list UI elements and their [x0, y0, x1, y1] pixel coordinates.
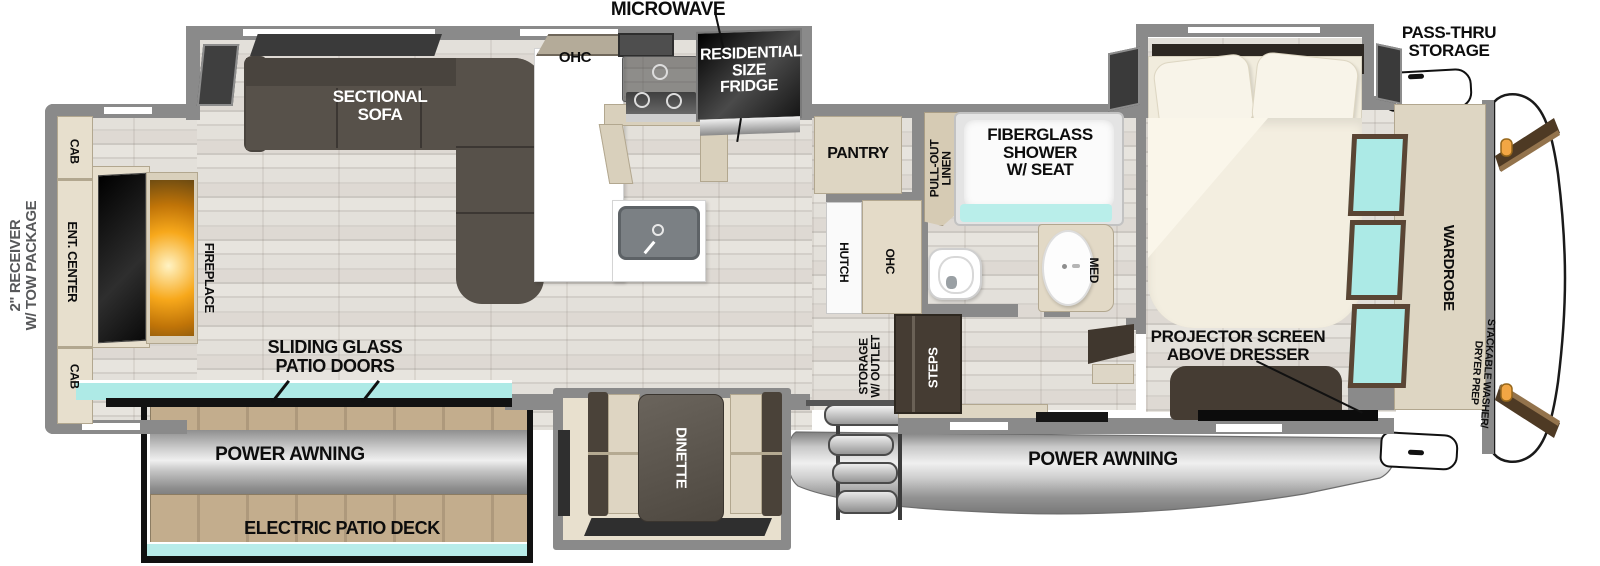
pantry-label: PANTRY [814, 146, 902, 163]
pull-out-linen-label: PULL-OUT LINEN [922, 114, 960, 222]
ohc-bath-label: OHC [876, 232, 904, 290]
fireplace-label: FIREPLACE [196, 210, 222, 346]
window-bed-slide-top [1188, 27, 1320, 33]
patio-frame-right [527, 404, 533, 558]
rear-cabinet-divider-1 [57, 178, 93, 181]
fireplace-glow [150, 180, 194, 336]
sink-drain [652, 224, 664, 236]
window-bed-left [1108, 47, 1140, 112]
sofa-chaise-seam-2 [456, 212, 544, 214]
patio-door-frame [106, 398, 512, 407]
projector-screen [1198, 410, 1378, 421]
bedroom-step [1092, 364, 1134, 384]
steps-label: STEPS [918, 328, 948, 408]
burner-1 [652, 64, 668, 80]
electric-patio-deck-label: ELECTRIC PATIO DECK [230, 519, 454, 538]
wardrobe-mirror-1 [1348, 134, 1408, 216]
burner-3 [666, 93, 682, 109]
marker-light-top [1501, 139, 1512, 156]
fridge-label: RESIDENTIAL SIZE FRIDGE [700, 44, 798, 97]
shower-seat-edge [960, 204, 1112, 222]
sofa-chaise [456, 58, 544, 304]
power-awning-left-label: POWER AWNING [198, 445, 382, 465]
rear-cabinet-divider-2 [57, 346, 93, 349]
bath-sink-faucet [1062, 264, 1067, 269]
sliding-glass-doors [76, 380, 512, 400]
burner-2 [634, 92, 650, 108]
window-dinette-left [558, 430, 570, 516]
window-bedroom-bottom [1036, 412, 1108, 422]
microwave-label: MICROWAVE [600, 0, 736, 20]
power-awning-right-label: POWER AWNING [1008, 450, 1198, 470]
sofa-chaise-seam-1 [456, 146, 544, 148]
patio-frame-bottom [141, 556, 533, 563]
storage-outlet-label: STORAGE W/ OUTLET [848, 320, 892, 412]
window-sofa-slide-inner [250, 34, 442, 56]
dinette-cushion-line-right [730, 452, 782, 455]
pass-thru-storage-label: PASS-THRU STORAGE [1386, 24, 1512, 59]
bath-sink-faucet-2 [1072, 264, 1080, 268]
tv [98, 173, 146, 344]
wardrobe-mirror-2 [1346, 220, 1406, 300]
window-sofa-slide-left [197, 44, 240, 106]
receiver-tow-label: 2" RECEIVER W/ TOW PACKAGE [0, 178, 48, 354]
entry-step-4 [836, 490, 898, 514]
ent-center-label: ENT. CENTER [58, 194, 86, 330]
patio-wood-strip [150, 404, 532, 432]
cab-bottom-label: CAB [60, 350, 88, 402]
sectional-sofa-label: SECTIONAL SOFA [298, 88, 462, 123]
ohc-kitchen-label: OHC [546, 50, 604, 66]
pass-thru-door-handle [1408, 74, 1424, 80]
stove-base-trim [626, 114, 696, 122]
entry-step-3 [832, 462, 898, 484]
cab-top-label: CAB [60, 124, 88, 178]
steps-divider [912, 316, 915, 412]
window-bottom-1 [950, 422, 1008, 430]
med-label: MED [1082, 244, 1106, 296]
dinette-cushion-line-left [588, 452, 640, 455]
window-bottom-2 [1216, 424, 1282, 432]
rv-floorplan: MICROWAVE PASS-THRU STORAGE RESIDENTIAL … [0, 0, 1600, 566]
wall-bath-bedroom [1136, 118, 1146, 334]
window-rear-bottom [82, 423, 140, 430]
toilet-bowl [938, 256, 974, 294]
lower-compartment-handle [1408, 450, 1424, 456]
wall-wardrobe-stub [1348, 388, 1394, 410]
microwave [618, 33, 674, 57]
window-rear-top [104, 107, 152, 114]
stackable-washer-dryer-label: STACKABLE WASHER/ DRYER PREP [1456, 308, 1508, 438]
projector-screen-label: PROJECTOR SCREEN ABOVE DRESSER [1130, 328, 1346, 363]
shower-label: FIBERGLASS SHOWER W/ SEAT [962, 126, 1118, 179]
wardrobe-mirror-3 [1348, 304, 1410, 388]
dinette-label: DINETTE [640, 396, 722, 520]
sliding-doors-label: SLIDING GLASS PATIO DOORS [252, 338, 418, 375]
entry-step-2 [828, 434, 894, 456]
hutch-label: HUTCH [830, 226, 858, 298]
toilet-drain [946, 276, 957, 289]
